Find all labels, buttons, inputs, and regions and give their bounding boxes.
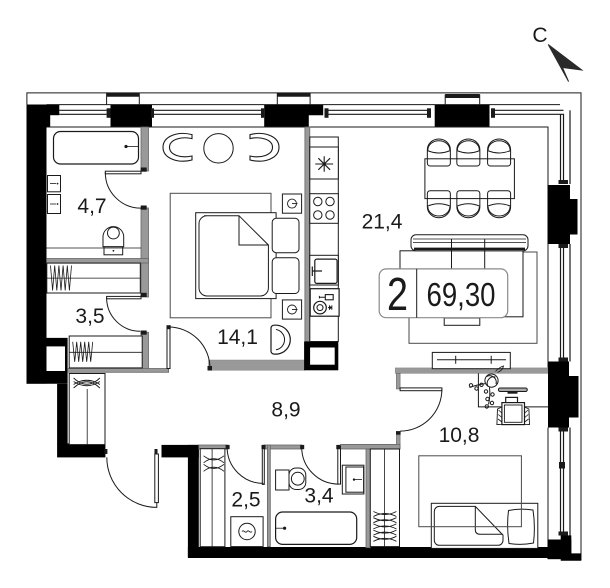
svg-text:8,9: 8,9 [271,399,300,422]
svg-text:10,8: 10,8 [439,424,480,447]
svg-text:69,30: 69,30 [427,276,496,313]
svg-text:21,4: 21,4 [362,210,403,233]
svg-text:3,5: 3,5 [75,305,104,328]
svg-text:2,5: 2,5 [231,489,260,512]
svg-text:С: С [532,24,547,47]
svg-text:3,4: 3,4 [304,485,334,508]
svg-text:14,1: 14,1 [217,326,258,349]
svg-text:4,7: 4,7 [77,195,106,218]
svg-text:2: 2 [387,268,408,320]
